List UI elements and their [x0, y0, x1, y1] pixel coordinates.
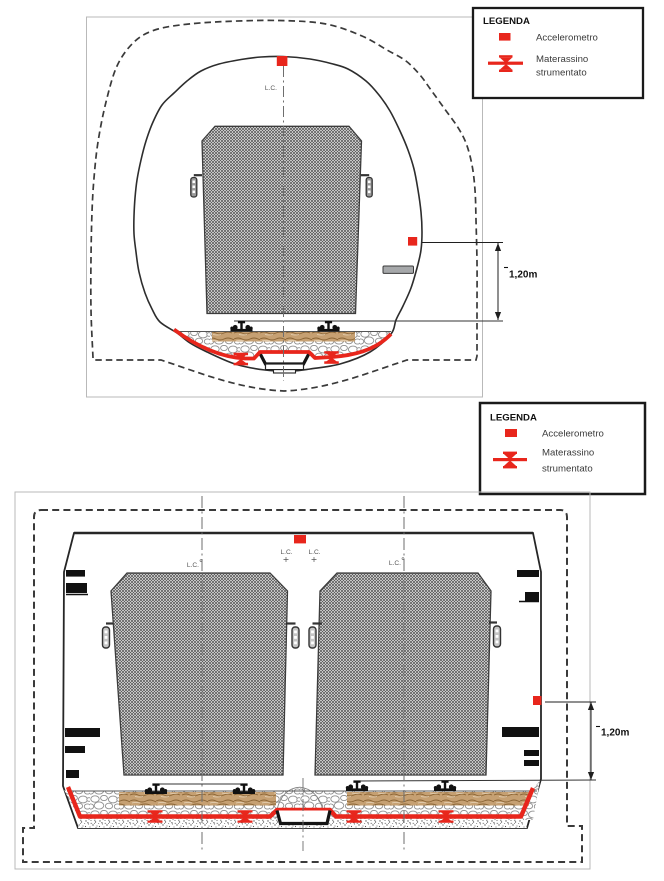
svg-text:L.C.: L.C. — [265, 85, 277, 92]
svg-text:Accelerometro: Accelerometro — [536, 33, 598, 44]
svg-text:LEGENDA: LEGENDA — [483, 16, 530, 27]
svg-text:Materassino: Materassino — [542, 448, 594, 459]
svg-text:L.C.: L.C. — [280, 549, 292, 556]
svg-text:L.C.: L.C. — [308, 549, 320, 556]
svg-text:Accelerometro: Accelerometro — [542, 429, 604, 440]
svg-text:LEGENDA: LEGENDA — [490, 413, 537, 424]
svg-text:strumentato: strumentato — [542, 464, 593, 475]
svg-text:Materassino: Materassino — [536, 54, 588, 65]
svg-text:strumentato: strumentato — [536, 68, 587, 79]
svg-text:L.C.: L.C. — [187, 562, 199, 569]
svg-text:1,20m: 1,20m — [601, 728, 629, 739]
svg-text:L.C.: L.C. — [389, 560, 401, 567]
svg-text:1,20m: 1,20m — [509, 270, 537, 281]
